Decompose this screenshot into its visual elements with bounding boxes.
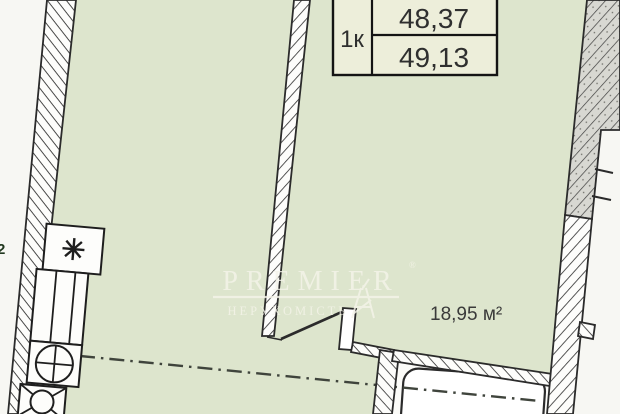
unit-info-table: 1к 48,37 49,13: [333, 0, 497, 75]
kitchen-counter: [30, 269, 88, 345]
floor-plan-page: 1к 48,37 49,13 18,95 м² 2 PREMIER ® НЕРУ…: [0, 0, 620, 414]
area-value-total: 48,37: [399, 3, 469, 34]
area-value-reduced: 49,13: [399, 42, 469, 73]
unit-type-label: 1к: [340, 26, 364, 53]
room-interior: [30, 0, 587, 414]
watermark-brand: PREMIER: [222, 266, 399, 297]
room-area-label: 18,95 м²: [430, 304, 502, 325]
washer-drum: [30, 389, 55, 414]
watermark-subtitle: НЕРУХОМІСТЬ: [227, 304, 348, 318]
watermark-registered-mark: ®: [409, 260, 416, 270]
floor-plan-svg: 1к 48,37 49,13 18,95 м² 2 PREMIER ® НЕРУ…: [0, 0, 620, 414]
margin-label-2: 2: [0, 241, 5, 258]
wall-right-protrusion: [578, 322, 595, 339]
